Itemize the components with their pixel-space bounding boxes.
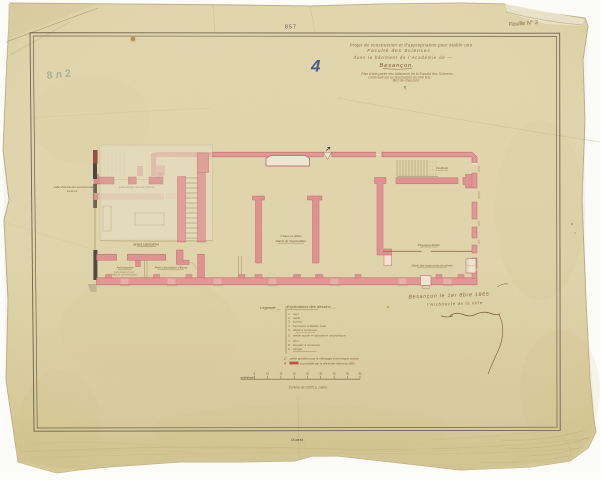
svg-text:Ouest.: Ouest.	[291, 437, 305, 442]
